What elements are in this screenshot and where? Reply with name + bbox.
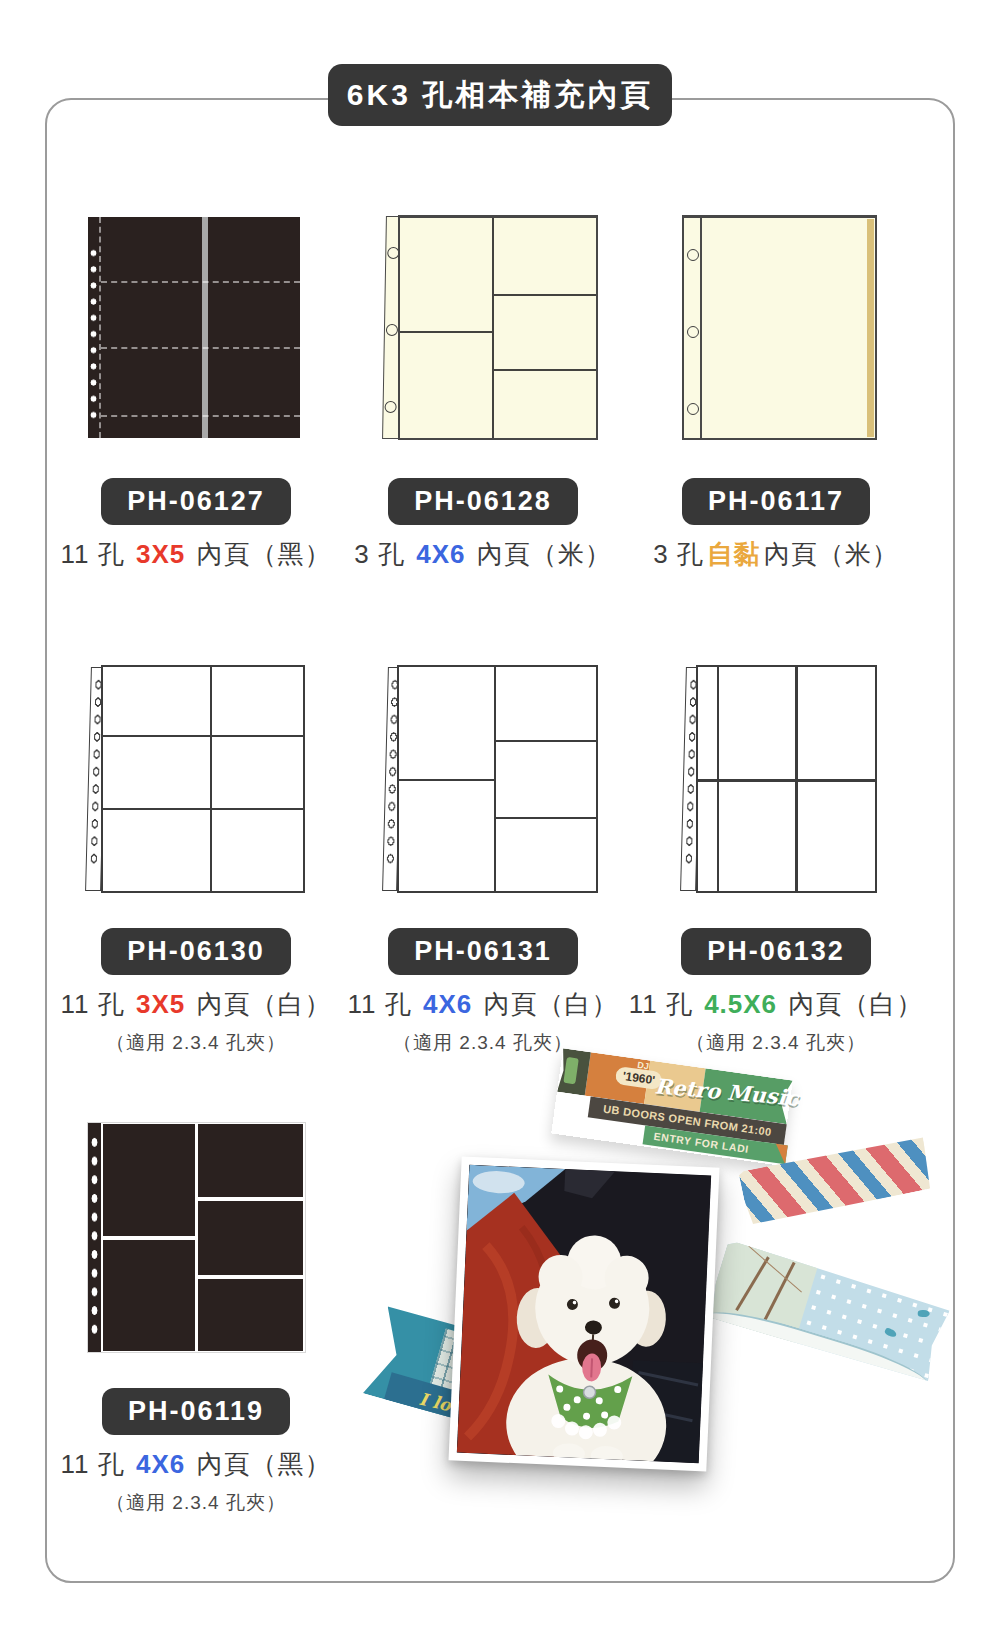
product-desc: 3 孔自黏內頁（米） bbox=[626, 537, 926, 572]
product-code: PH-06119 bbox=[128, 1396, 264, 1426]
product-code-badge: PH-06127 bbox=[101, 478, 291, 525]
binder-holes bbox=[89, 245, 98, 423]
product-desc: 3 孔 4X6 內頁（米） bbox=[333, 537, 633, 572]
product-image-ph-06131 bbox=[385, 665, 598, 893]
product-label-ph-06117: PH-06117 3 孔自黏內頁（米） bbox=[626, 478, 926, 572]
desc-suffix: 內頁（米） bbox=[764, 539, 899, 569]
page-body bbox=[696, 665, 877, 893]
pocket-divider bbox=[494, 294, 596, 296]
pocket-divider bbox=[698, 779, 875, 782]
product-image-ph-06119 bbox=[88, 1123, 305, 1352]
product-image-ph-06117 bbox=[682, 215, 877, 440]
product-image-ph-06127 bbox=[88, 217, 300, 438]
desc-size: 4.5X6 bbox=[704, 989, 777, 1019]
desc-size: 自黏 bbox=[707, 539, 761, 569]
pocket-divider bbox=[101, 347, 300, 349]
pocket-divider bbox=[496, 817, 596, 819]
dog-photo bbox=[448, 1157, 719, 1472]
ship-mast bbox=[763, 1262, 796, 1322]
pocket-divider bbox=[496, 740, 596, 742]
product-code-badge: PH-06128 bbox=[388, 478, 578, 525]
pocket-divider bbox=[101, 415, 300, 417]
dashed-edge-line bbox=[99, 217, 101, 438]
desc-size: 3X5 bbox=[136, 989, 185, 1019]
black-pocket bbox=[198, 1279, 303, 1351]
desc-prefix: 11 孔 bbox=[348, 989, 420, 1019]
desc-prefix: 11 孔 bbox=[61, 539, 133, 569]
black-pocket bbox=[198, 1201, 303, 1275]
page: 6K3 孔相本補充內頁 bbox=[0, 0, 1000, 1632]
product-label-ph-06127: PH-06127 11 孔 3X5 內頁（黑） bbox=[46, 478, 346, 572]
desc-prefix: 11 孔 bbox=[61, 989, 133, 1019]
pocket-divider bbox=[494, 667, 496, 891]
product-label-ph-06132: PH-06132 11 孔 4.5X6 內頁（白） （適用 2.3.4 孔夾） bbox=[626, 928, 926, 1056]
dog-illustration bbox=[457, 1165, 711, 1463]
pocket-divider bbox=[399, 779, 494, 781]
desc-size: 4X6 bbox=[136, 1449, 185, 1479]
page-edge-band bbox=[867, 219, 874, 437]
desc-prefix: 11 孔 bbox=[61, 1449, 133, 1479]
product-desc: 11 孔 4.5X6 內頁（白） bbox=[626, 987, 926, 1022]
product-desc: 11 孔 3X5 內頁（白） bbox=[46, 987, 346, 1022]
binder-holes bbox=[88, 1133, 101, 1339]
black-pocket bbox=[103, 1124, 195, 1236]
product-label-ph-06128: PH-06128 3 孔 4X6 內頁（米） bbox=[333, 478, 633, 572]
product-desc: 11 孔 4X6 內頁（白） bbox=[333, 987, 633, 1022]
product-code: PH-06117 bbox=[708, 486, 844, 516]
product-label-ph-06131: PH-06131 11 孔 4X6 內頁（白） （適用 2.3.4 孔夾） bbox=[333, 928, 633, 1056]
strip-divider bbox=[700, 218, 702, 438]
desc-size: 4X6 bbox=[416, 539, 465, 569]
product-desc: 11 孔 4X6 內頁（黑） bbox=[46, 1447, 346, 1482]
product-code: PH-06130 bbox=[127, 936, 265, 966]
product-image-ph-06132 bbox=[683, 665, 877, 893]
ring-hole bbox=[386, 324, 398, 336]
product-code-badge: PH-06119 bbox=[102, 1388, 290, 1435]
dog-photo-scene bbox=[457, 1165, 711, 1463]
product-code: PH-06127 bbox=[127, 486, 265, 516]
jukebox-icon bbox=[563, 1057, 579, 1084]
ring-hole bbox=[687, 403, 699, 415]
desc-suffix: 內頁（黑） bbox=[188, 1449, 331, 1479]
desc-suffix: 內頁（白） bbox=[188, 989, 331, 1019]
black-pocket bbox=[103, 1240, 195, 1351]
product-desc: 11 孔 3X5 內頁（黑） bbox=[46, 537, 346, 572]
product-code: PH-06131 bbox=[414, 936, 552, 966]
ring-hole bbox=[385, 401, 397, 413]
desc-suffix: 內頁（白） bbox=[475, 989, 618, 1019]
center-spine bbox=[202, 217, 208, 438]
product-note: （適用 2.3.4 孔夾） bbox=[626, 1030, 926, 1056]
pocket-divider bbox=[494, 369, 596, 371]
desc-suffix: 內頁（米） bbox=[468, 539, 611, 569]
pocket-divider bbox=[210, 667, 212, 891]
product-image-ph-06130 bbox=[88, 665, 305, 893]
binding-strip bbox=[88, 1123, 101, 1352]
page-body bbox=[397, 665, 598, 893]
desc-prefix: 3 孔 bbox=[354, 539, 413, 569]
page-body bbox=[101, 665, 305, 893]
fish-icon bbox=[918, 1310, 930, 1317]
pocket-divider bbox=[101, 281, 300, 283]
product-code-badge: PH-06131 bbox=[388, 928, 578, 975]
desc-suffix: 內頁（白） bbox=[780, 989, 923, 1019]
pocket-divider bbox=[103, 808, 303, 810]
desc-size: 4X6 bbox=[423, 989, 472, 1019]
desc-size: 3X5 bbox=[136, 539, 185, 569]
black-pocket bbox=[198, 1124, 303, 1197]
ring-hole bbox=[687, 249, 699, 261]
product-image-ph-06128 bbox=[384, 215, 598, 440]
page-body bbox=[398, 215, 598, 440]
product-note: （適用 2.3.4 孔夾） bbox=[46, 1490, 346, 1516]
product-code-badge: PH-06132 bbox=[681, 928, 871, 975]
ship-mast bbox=[735, 1256, 770, 1311]
pocket-divider bbox=[103, 735, 303, 737]
pocket-divider bbox=[492, 218, 494, 438]
desc-prefix: 3 孔 bbox=[653, 539, 704, 569]
product-code: PH-06132 bbox=[707, 936, 845, 966]
page-title-text: 6K3 孔相本補充內頁 bbox=[347, 78, 653, 111]
product-code: PH-06128 bbox=[414, 486, 552, 516]
product-code-badge: PH-06130 bbox=[101, 928, 291, 975]
product-label-ph-06130: PH-06130 11 孔 3X5 內頁（白） （適用 2.3.4 孔夾） bbox=[46, 928, 346, 1056]
ring-hole bbox=[687, 326, 699, 338]
desc-suffix: 內頁（黑） bbox=[188, 539, 331, 569]
page-title: 6K3 孔相本補充內頁 bbox=[328, 64, 672, 126]
product-label-ph-06119: PH-06119 11 孔 4X6 內頁（黑） （適用 2.3.4 孔夾） bbox=[46, 1388, 346, 1516]
desc-prefix: 11 孔 bbox=[629, 989, 701, 1019]
product-code-badge: PH-06117 bbox=[682, 478, 870, 525]
pocket-divider bbox=[400, 331, 492, 333]
product-note: （適用 2.3.4 孔夾） bbox=[46, 1030, 346, 1056]
fish-icon bbox=[884, 1327, 898, 1339]
